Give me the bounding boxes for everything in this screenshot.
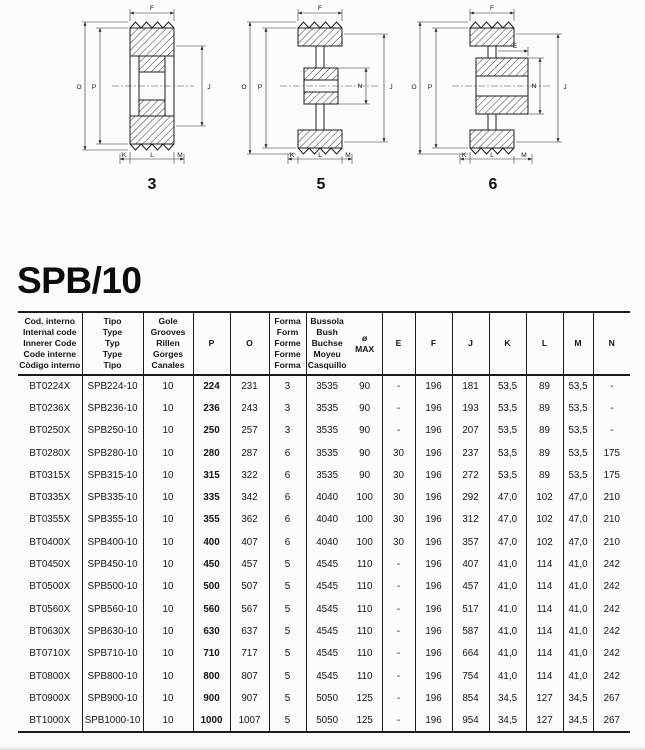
cell-F: 196 (415, 442, 452, 464)
cell-N: 242 (593, 598, 630, 620)
cell-J: 754 (452, 665, 489, 687)
column-header-bush: BussolaBushBuchseMoyeuCasquilloøMAX (306, 312, 382, 375)
dim-label-o: O (411, 84, 416, 91)
cell-J: 181 (452, 375, 489, 397)
cell-J: 193 (452, 397, 489, 419)
cell-O: 231 (230, 375, 269, 397)
table-row: BT0710XSPB710-101071071754545110-1966644… (18, 643, 630, 665)
cell-K: 41,0 (489, 643, 526, 665)
table-row: BT0400XSPB400-10104004076404010030196357… (18, 531, 630, 553)
cell-grooves: 10 (143, 687, 193, 709)
cell-J: 207 (452, 420, 489, 442)
dim-label-f: F (150, 5, 154, 12)
cell-grooves: 10 (143, 375, 193, 397)
dim-label-f: F (490, 5, 494, 12)
column-header-form: FormaFormFormeFormeForma (269, 312, 306, 375)
cell-E: - (382, 665, 415, 687)
table-row: BT0236XSPB236-10102362433353590-19619353… (18, 397, 630, 419)
dim-label-m: M (521, 152, 526, 159)
groove-profile-top (130, 22, 174, 28)
dim-label-p: P (92, 84, 96, 91)
dim-label-n: N (358, 83, 363, 90)
cell-M: 41,0 (563, 643, 593, 665)
pulley-section-form-5: F O P N J K L M (226, 2, 410, 174)
cell-P: 224 (193, 375, 230, 397)
cell-type: SPB630-10 (82, 620, 143, 642)
bush-section-top (139, 56, 165, 72)
cell-M: 53,5 (563, 397, 593, 419)
cell-P: 560 (193, 598, 230, 620)
dim-label-p: P (428, 84, 432, 91)
dim-label-n: N (532, 83, 537, 90)
cell-N: 210 (593, 486, 630, 508)
form-number-5: 5 (310, 176, 332, 194)
dim-label-m: M (345, 152, 350, 159)
cell-type: SPB335-10 (82, 486, 143, 508)
cell-F: 196 (415, 531, 452, 553)
cell-code: BT0450X (18, 553, 82, 575)
cell-M: 53,5 (563, 442, 593, 464)
cell-M: 53,5 (563, 420, 593, 442)
cell-K: 53,5 (489, 442, 526, 464)
cell-N: 210 (593, 531, 630, 553)
cell-type: SPB900-10 (82, 687, 143, 709)
cell-E: 30 (382, 509, 415, 531)
cell-K: 41,0 (489, 553, 526, 575)
cell-type: SPB236-10 (82, 397, 143, 419)
cell-E: - (382, 420, 415, 442)
cell-code: BT0315X (18, 464, 82, 486)
cell-O: 243 (230, 397, 269, 419)
dim-label-k: K (290, 152, 295, 159)
cell-N: 267 (593, 687, 630, 709)
cell-grooves: 10 (143, 464, 193, 486)
form-number-6: 6 (482, 176, 504, 194)
table-row: BT0800XSPB800-101080080754545110-1967544… (18, 665, 630, 687)
cell-bush: 4040100 (306, 486, 382, 508)
cell-E: - (382, 598, 415, 620)
cell-L: 114 (526, 576, 563, 598)
cell-O: 567 (230, 598, 269, 620)
cell-form: 6 (269, 531, 306, 553)
cell-N: 267 (593, 709, 630, 731)
cell-grooves: 10 (143, 442, 193, 464)
cell-code: BT0335X (18, 486, 82, 508)
cell-J: 517 (452, 598, 489, 620)
cell-E: - (382, 375, 415, 397)
cell-O: 257 (230, 420, 269, 442)
cell-N: 242 (593, 553, 630, 575)
cell-J: 312 (452, 509, 489, 531)
cell-M: 34,5 (563, 709, 593, 731)
cell-bush: 4545110 (306, 553, 382, 575)
cell-F: 196 (415, 620, 452, 642)
table-row: BT0224XSPB224-10102242313353590-19618153… (18, 375, 630, 397)
dim-label-l: L (318, 152, 322, 159)
groove-profile-top (298, 22, 342, 28)
column-header-J: J (452, 312, 489, 375)
cell-E: - (382, 709, 415, 731)
cell-type: SPB800-10 (82, 665, 143, 687)
cell-grooves: 10 (143, 665, 193, 687)
cell-J: 357 (452, 531, 489, 553)
cell-K: 34,5 (489, 687, 526, 709)
cell-bush: 4040100 (306, 531, 382, 553)
cell-F: 196 (415, 509, 452, 531)
cell-N: - (593, 420, 630, 442)
cell-J: 237 (452, 442, 489, 464)
cell-O: 507 (230, 576, 269, 598)
cell-P: 500 (193, 576, 230, 598)
cell-F: 196 (415, 420, 452, 442)
cell-L: 127 (526, 687, 563, 709)
cell-code: BT0900X (18, 687, 82, 709)
cell-F: 196 (415, 709, 452, 731)
dim-label-f: F (318, 5, 322, 12)
header-row: Cod. internoInternal codeInnerer CodeCod… (18, 312, 630, 375)
cell-form: 6 (269, 486, 306, 508)
rim-section-bottom (470, 130, 514, 148)
cell-bush: 353590 (306, 442, 382, 464)
cell-code: BT0355X (18, 509, 82, 531)
dim-label-j: J (563, 84, 566, 91)
table-row: BT0280XSPB280-10102802876353590301962375… (18, 442, 630, 464)
cell-bush: 353590 (306, 375, 382, 397)
table-row: BT0500XSPB500-101050050754545110-1964574… (18, 576, 630, 598)
cell-bush: 5050125 (306, 687, 382, 709)
cell-bush: 353590 (306, 420, 382, 442)
cell-F: 196 (415, 553, 452, 575)
cell-form: 3 (269, 375, 306, 397)
table-row: BT0250XSPB250-10102502573353590-19620753… (18, 420, 630, 442)
cell-N: 242 (593, 576, 630, 598)
cell-form: 5 (269, 709, 306, 731)
table-row: BT0335XSPB335-10103353426404010030196292… (18, 486, 630, 508)
cell-grooves: 10 (143, 509, 193, 531)
cell-form: 3 (269, 420, 306, 442)
groove-profile-bottom (130, 144, 174, 150)
cell-bush: 4545110 (306, 665, 382, 687)
cell-J: 954 (452, 709, 489, 731)
groove-profile-top (470, 22, 514, 28)
cell-F: 196 (415, 643, 452, 665)
rim-section-top (298, 28, 342, 46)
cell-L: 89 (526, 375, 563, 397)
dim-label-j: J (207, 84, 210, 91)
cell-grooves: 10 (143, 643, 193, 665)
dim-label-m: M (177, 152, 182, 159)
cell-P: 355 (193, 509, 230, 531)
table-row: BT0560XSPB560-101056056754545110-1965174… (18, 598, 630, 620)
column-header-N: N (593, 312, 630, 375)
table-row: BT0355XSPB355-10103553626404010030196312… (18, 509, 630, 531)
spec-table-head: Cod. internoInternal codeInnerer CodeCod… (18, 312, 630, 375)
cell-F: 196 (415, 576, 452, 598)
cell-M: 47,0 (563, 486, 593, 508)
rim-section-top (470, 28, 514, 46)
dim-label-j: J (389, 84, 392, 91)
cell-L: 114 (526, 620, 563, 642)
cell-E: - (382, 620, 415, 642)
table-row: BT1000XSPB1000-10101000100755050125-1969… (18, 709, 630, 731)
cell-F: 196 (415, 397, 452, 419)
cell-E: - (382, 576, 415, 598)
cell-code: BT0236X (18, 397, 82, 419)
cell-L: 114 (526, 553, 563, 575)
cell-type: SPB224-10 (82, 375, 143, 397)
cell-L: 89 (526, 464, 563, 486)
hub-section-bottom (304, 92, 338, 104)
cell-N: 210 (593, 509, 630, 531)
cell-J: 587 (452, 620, 489, 642)
cell-N: 175 (593, 464, 630, 486)
cell-N: 242 (593, 643, 630, 665)
column-header-O: O (230, 312, 269, 375)
cell-code: BT0710X (18, 643, 82, 665)
rim-section-top (130, 28, 174, 56)
dim-label-k: K (462, 152, 467, 159)
cell-type: SPB250-10 (82, 420, 143, 442)
dim-label-p: P (258, 84, 262, 91)
cell-form: 5 (269, 665, 306, 687)
cell-N: 175 (593, 442, 630, 464)
cell-K: 34,5 (489, 709, 526, 731)
dim-label-l: L (490, 152, 494, 159)
cell-form: 5 (269, 643, 306, 665)
cell-bush: 353590 (306, 464, 382, 486)
column-header-E: E (382, 312, 415, 375)
cell-type: SPB1000-10 (82, 709, 143, 731)
cell-type: SPB710-10 (82, 643, 143, 665)
cell-P: 800 (193, 665, 230, 687)
column-header-F: F (415, 312, 452, 375)
dim-label-l: L (150, 152, 154, 159)
cell-K: 41,0 (489, 598, 526, 620)
cell-P: 710 (193, 643, 230, 665)
cell-code: BT1000X (18, 709, 82, 731)
hub-section-top (304, 68, 338, 80)
cell-P: 335 (193, 486, 230, 508)
cell-O: 1007 (230, 709, 269, 731)
cell-O: 457 (230, 553, 269, 575)
cell-J: 854 (452, 687, 489, 709)
cell-K: 47,0 (489, 531, 526, 553)
cell-E: - (382, 643, 415, 665)
cell-O: 717 (230, 643, 269, 665)
cell-L: 89 (526, 397, 563, 419)
cell-code: BT0500X (18, 576, 82, 598)
table-row: BT0900XSPB900-101090090755050125-1968543… (18, 687, 630, 709)
cell-form: 5 (269, 620, 306, 642)
cell-F: 196 (415, 598, 452, 620)
cell-form: 5 (269, 553, 306, 575)
cell-P: 450 (193, 553, 230, 575)
column-header-L: L (526, 312, 563, 375)
cell-grooves: 10 (143, 576, 193, 598)
cell-J: 272 (452, 464, 489, 486)
cell-L: 102 (526, 486, 563, 508)
cell-M: 47,0 (563, 509, 593, 531)
cell-N: 242 (593, 665, 630, 687)
cell-J: 407 (452, 553, 489, 575)
cell-P: 280 (193, 442, 230, 464)
cell-form: 6 (269, 509, 306, 531)
cell-O: 807 (230, 665, 269, 687)
cell-bush: 4545110 (306, 643, 382, 665)
cell-N: 242 (593, 620, 630, 642)
cell-bush: 4545110 (306, 598, 382, 620)
cell-M: 41,0 (563, 553, 593, 575)
cell-L: 114 (526, 598, 563, 620)
cell-code: BT0250X (18, 420, 82, 442)
table-row: BT0315XSPB315-10103153226353590301962725… (18, 464, 630, 486)
cell-K: 47,0 (489, 509, 526, 531)
cell-P: 236 (193, 397, 230, 419)
cell-E: 30 (382, 486, 415, 508)
cell-L: 102 (526, 509, 563, 531)
rim-section-bottom (298, 130, 342, 148)
form-number-3: 3 (141, 176, 163, 194)
cell-F: 196 (415, 687, 452, 709)
page-title: SPB/10 (17, 260, 142, 302)
cell-M: 41,0 (563, 620, 593, 642)
cell-type: SPB560-10 (82, 598, 143, 620)
cell-type: SPB450-10 (82, 553, 143, 575)
cell-L: 114 (526, 643, 563, 665)
cell-code: BT0560X (18, 598, 82, 620)
dim-label-o: O (241, 84, 246, 91)
cell-E: 30 (382, 464, 415, 486)
dim-label-e: E (513, 43, 518, 50)
cell-form: 5 (269, 687, 306, 709)
table-row: BT0630XSPB630-101063063754545110-1965874… (18, 620, 630, 642)
cell-E: 30 (382, 442, 415, 464)
cell-L: 114 (526, 665, 563, 687)
cell-P: 630 (193, 620, 230, 642)
column-header-grooves: GoleGroovesRillenGorgesCanales (143, 312, 193, 375)
cell-E: - (382, 553, 415, 575)
cell-K: 53,5 (489, 464, 526, 486)
column-header-type: TipoTypeTypTypeTipo (82, 312, 143, 375)
cell-M: 41,0 (563, 598, 593, 620)
cell-P: 250 (193, 420, 230, 442)
cell-grooves: 10 (143, 620, 193, 642)
cell-J: 457 (452, 576, 489, 598)
cell-M: 53,5 (563, 375, 593, 397)
cell-F: 196 (415, 375, 452, 397)
cell-bush: 4545110 (306, 576, 382, 598)
cell-J: 292 (452, 486, 489, 508)
cell-K: 53,5 (489, 420, 526, 442)
cell-N: - (593, 375, 630, 397)
cell-grooves: 10 (143, 420, 193, 442)
cell-K: 41,0 (489, 665, 526, 687)
cell-K: 41,0 (489, 620, 526, 642)
column-header-code: Cod. internoInternal codeInnerer CodeCod… (18, 312, 82, 375)
cell-E: 30 (382, 531, 415, 553)
cell-type: SPB315-10 (82, 464, 143, 486)
cell-code: BT0280X (18, 442, 82, 464)
cell-M: 41,0 (563, 665, 593, 687)
cell-M: 47,0 (563, 531, 593, 553)
cell-bush: 4545110 (306, 620, 382, 642)
cell-form: 5 (269, 598, 306, 620)
cell-type: SPB400-10 (82, 531, 143, 553)
cell-type: SPB500-10 (82, 576, 143, 598)
cell-O: 342 (230, 486, 269, 508)
cell-F: 196 (415, 665, 452, 687)
cell-E: - (382, 687, 415, 709)
cell-code: BT0630X (18, 620, 82, 642)
cell-M: 41,0 (563, 576, 593, 598)
cell-E: - (382, 397, 415, 419)
cell-code: BT0800X (18, 665, 82, 687)
spec-table-body: BT0224XSPB224-10102242313353590-19618153… (18, 375, 630, 732)
bush-section-bottom (139, 100, 165, 116)
cell-L: 102 (526, 531, 563, 553)
cell-form: 6 (269, 442, 306, 464)
cell-bush: 353590 (306, 397, 382, 419)
rim-section-bottom (130, 116, 174, 144)
cell-K: 47,0 (489, 486, 526, 508)
cell-M: 34,5 (563, 687, 593, 709)
column-header-M: M (563, 312, 593, 375)
cell-P: 400 (193, 531, 230, 553)
cell-code: BT0400X (18, 531, 82, 553)
cell-P: 1000 (193, 709, 230, 731)
cell-N: - (593, 397, 630, 419)
cell-grooves: 10 (143, 531, 193, 553)
table-row: BT0450XSPB450-101045045754545110-1964074… (18, 553, 630, 575)
pulley-diagram-form-3: F O P J K L M 3 (58, 2, 228, 202)
scan-edge (0, 746, 645, 750)
spec-table: Cod. internoInternal codeInnerer CodeCod… (18, 311, 630, 733)
cell-L: 89 (526, 442, 563, 464)
cell-grooves: 10 (143, 598, 193, 620)
cell-O: 322 (230, 464, 269, 486)
cell-K: 41,0 (489, 576, 526, 598)
column-header-P: P (193, 312, 230, 375)
cell-P: 315 (193, 464, 230, 486)
cell-type: SPB280-10 (82, 442, 143, 464)
cell-O: 362 (230, 509, 269, 531)
dim-label-o: O (76, 84, 81, 91)
dim-label-k: K (122, 152, 127, 159)
cell-K: 53,5 (489, 397, 526, 419)
cell-grooves: 10 (143, 486, 193, 508)
pulley-diagram-form-5: F O P N J K L M 5 (226, 2, 410, 202)
cell-O: 407 (230, 531, 269, 553)
hub-section-bottom (476, 96, 528, 114)
cell-J: 664 (452, 643, 489, 665)
hub-section-top (476, 58, 528, 76)
cell-O: 907 (230, 687, 269, 709)
pulley-diagram-form-6: E F O P N J K L M 6 (398, 2, 582, 202)
cell-F: 196 (415, 464, 452, 486)
cell-L: 89 (526, 420, 563, 442)
cell-M: 53,5 (563, 464, 593, 486)
cell-form: 6 (269, 464, 306, 486)
cell-O: 637 (230, 620, 269, 642)
cell-grooves: 10 (143, 709, 193, 731)
cell-bush: 5050125 (306, 709, 382, 731)
pulley-section-form-6: E F O P N J K L M (398, 2, 582, 174)
cell-form: 5 (269, 576, 306, 598)
column-header-K: K (489, 312, 526, 375)
cell-grooves: 10 (143, 397, 193, 419)
cell-P: 900 (193, 687, 230, 709)
cell-grooves: 10 (143, 553, 193, 575)
